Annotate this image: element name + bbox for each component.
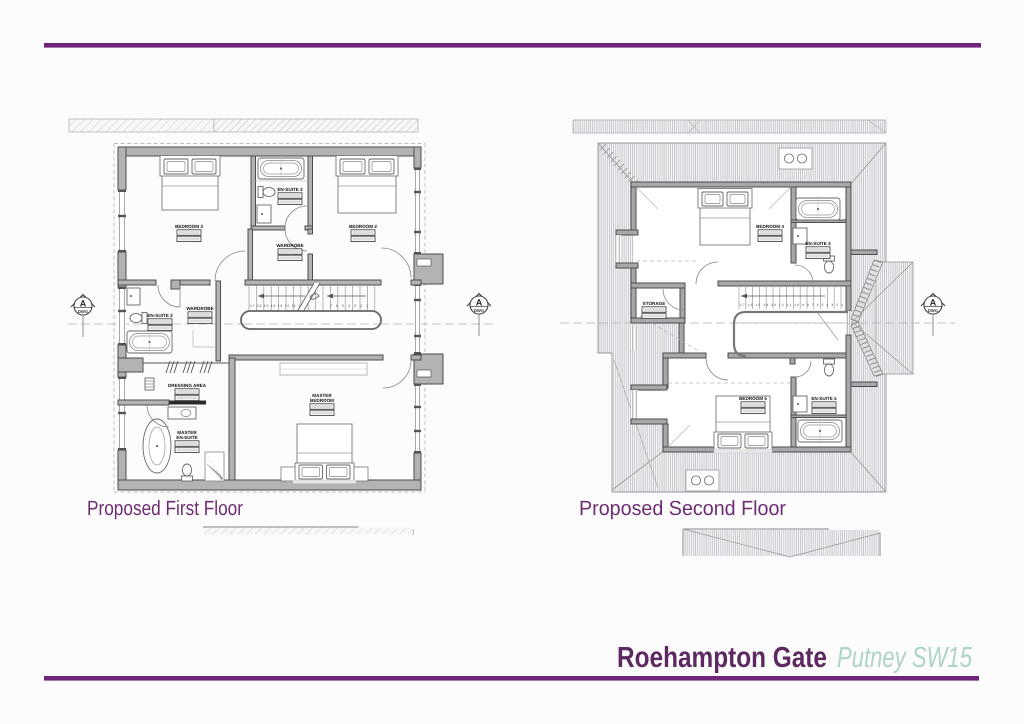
svg-text:Roehampton Gate: Roehampton Gate [617, 642, 827, 674]
svg-text:EN-SUITE 2: EN-SUITE 2 [277, 187, 303, 192]
svg-text:17 16 15 14 13 12 11 10 9 8 7: 17 16 15 14 13 12 11 10 9 8 7 6 5 4 3 2 … [740, 303, 843, 307]
svg-text:Putney SW15: Putney SW15 [837, 642, 973, 674]
svg-text:17 16 15 14 13 12 11 10 9: 17 16 15 14 13 12 11 10 9 [250, 304, 307, 308]
svg-text:Proposed First Floor: Proposed First Floor [87, 497, 243, 520]
svg-text:BEDROOM 3: BEDROOM 3 [175, 224, 203, 229]
svg-text:EN-SUITE 3: EN-SUITE 3 [147, 313, 173, 318]
svg-text:DRESSING AREA: DRESSING AREA [168, 383, 207, 388]
svg-text:BEDROOM 2: BEDROOM 2 [349, 224, 377, 229]
svg-text:DWG: DWG [78, 309, 88, 314]
svg-text:DWG: DWG [474, 308, 484, 313]
svg-text:BEDROOM 5: BEDROOM 5 [739, 396, 767, 401]
svg-text:EN-SUITE: EN-SUITE [176, 435, 197, 440]
svg-text:DWG: DWG [928, 308, 938, 313]
svg-text:Proposed Second Floor: Proposed Second Floor [579, 497, 786, 520]
svg-text:EN-SUITE 5: EN-SUITE 5 [811, 396, 837, 401]
svg-text:A: A [930, 298, 937, 308]
svg-text:WARDROBE: WARDROBE [276, 243, 303, 248]
svg-text:BEDROOM 4: BEDROOM 4 [756, 224, 784, 229]
svg-text:A: A [476, 298, 483, 308]
svg-text:STORAGE: STORAGE [643, 301, 666, 306]
svg-text:BEDROOM: BEDROOM [310, 398, 334, 403]
svg-text:WARDROBE: WARDROBE [186, 306, 213, 311]
svg-text:EN-SUITE 4: EN-SUITE 4 [805, 241, 831, 246]
svg-text:A: A [80, 299, 87, 309]
